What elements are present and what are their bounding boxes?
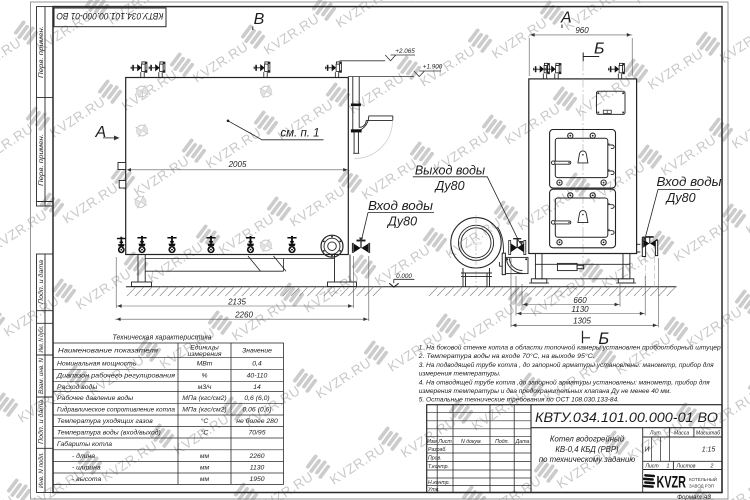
svg-text:0,06 (0,6): 0,06 (0,6) bbox=[242, 406, 271, 413]
svg-text:Н.контр.: Н.контр. bbox=[428, 480, 450, 486]
svg-text:0.000: 0.000 bbox=[396, 273, 412, 280]
svg-text:Расход воды: Расход воды bbox=[57, 383, 97, 391]
svg-text:5. Остальные технические треб: 5. Остальные технические требования по О… bbox=[419, 396, 620, 404]
svg-text:мм: мм bbox=[200, 453, 210, 460]
svg-text:+2.065: +2.065 bbox=[395, 48, 415, 55]
svg-text:2005: 2005 bbox=[228, 160, 247, 169]
svg-text:Подп. и дата: Подп. и дата bbox=[39, 399, 45, 444]
svg-text:2. Температура воды на входе: 2. Температура воды на входе 70°С, на вы… bbox=[418, 352, 595, 360]
svg-text:см. п. 1: см. п. 1 bbox=[280, 128, 319, 140]
svg-text:Перв. примен.: Перв. примен. bbox=[39, 134, 45, 186]
svg-text:1:15: 1:15 bbox=[702, 447, 716, 454]
svg-text:70/95: 70/95 bbox=[248, 430, 265, 437]
svg-text:Гидравлическое сопротивление к: Гидравлическое сопротивление котла bbox=[57, 405, 175, 413]
svg-text:0,4: 0,4 bbox=[252, 361, 262, 368]
svg-text:+1.900: +1.900 bbox=[423, 64, 443, 71]
svg-text:Масса: Масса bbox=[674, 431, 689, 437]
svg-text:Лист: Лист bbox=[437, 439, 452, 445]
svg-text:Ду80: Ду80 bbox=[386, 215, 417, 229]
svg-text:3. На подводящей трубе котла: 3. На подводящей трубе котла , до запорн… bbox=[419, 361, 714, 369]
svg-text:2260: 2260 bbox=[234, 311, 253, 320]
svg-text:В: В bbox=[254, 11, 265, 28]
svg-text:Рабочее давление воды: Рабочее давление воды bbox=[57, 394, 133, 402]
svg-text:Формат А3: Формат А3 bbox=[677, 494, 711, 500]
svg-text:Выход воды: Выход воды bbox=[415, 164, 485, 178]
svg-text:Б: Б bbox=[594, 41, 604, 58]
svg-text:960: 960 bbox=[575, 26, 589, 35]
svg-text:- длина: - длина bbox=[72, 452, 95, 460]
svg-text:КОТЕЛЬНЫЙ: КОТЕЛЬНЫЙ bbox=[689, 475, 717, 482]
svg-text:измерения: измерения bbox=[187, 351, 221, 358]
svg-text:измерения температуры.: измерения температуры. bbox=[419, 371, 501, 378]
svg-text:ЗАВОД РЭП: ЗАВОД РЭП bbox=[689, 484, 714, 489]
svg-text:KVZR: KVZR bbox=[657, 474, 687, 492]
svg-text:м3/ч: м3/ч bbox=[198, 384, 212, 391]
svg-text:1130: 1130 bbox=[571, 305, 589, 314]
svg-text:Лит.: Лит. bbox=[649, 431, 662, 437]
svg-text:Изм: Изм bbox=[427, 439, 437, 445]
svg-text:Перв. примен.: Перв. примен. bbox=[39, 26, 45, 78]
svg-text:мм: мм bbox=[200, 476, 210, 483]
svg-text:Дата: Дата bbox=[515, 439, 530, 445]
svg-text:2260: 2260 bbox=[248, 453, 264, 460]
svg-text:- высота: - высота bbox=[72, 476, 101, 483]
svg-text:Ду80: Ду80 bbox=[433, 179, 464, 193]
svg-text:КВТУ.034.101.00.000-01 ВО: КВТУ.034.101.00.000-01 ВО bbox=[56, 11, 164, 22]
svg-text:2135: 2135 bbox=[227, 298, 246, 307]
svg-text:Вход воды: Вход воды bbox=[657, 175, 722, 189]
svg-text:МПа (кгс/см2): МПа (кгс/см2) bbox=[182, 395, 226, 402]
svg-text:МПа (кгс/см2): МПа (кгс/см2) bbox=[182, 406, 226, 413]
svg-text:Значение: Значение bbox=[242, 347, 272, 354]
svg-text:1305: 1305 bbox=[573, 317, 591, 326]
svg-text:Масштаб: Масштаб bbox=[696, 431, 721, 437]
svg-text:%: % bbox=[201, 373, 207, 380]
svg-text:4. На отводящей трубе котла ,: 4. На отводящей трубе котла ,до запорной… bbox=[419, 379, 710, 387]
svg-text:мм: мм bbox=[200, 465, 210, 472]
svg-text:Вход воды: Вход воды bbox=[368, 199, 433, 213]
svg-text:МВт: МВт bbox=[197, 361, 213, 368]
svg-text:- ширина: - ширина bbox=[72, 465, 101, 472]
svg-text:КВ-0,4 КБД (РВР): КВ-0,4 КБД (РВР) bbox=[555, 445, 619, 454]
svg-text:Наименование показателя: Наименование показателя bbox=[58, 347, 158, 354]
svg-text:Лист: Лист bbox=[644, 464, 659, 470]
svg-text:Котел водогрейный: Котел водогрейный bbox=[550, 434, 625, 443]
svg-text:Разраб.: Разраб. bbox=[428, 447, 447, 453]
svg-text:КВТУ.034.101.00.000-01 ВО: КВТУ.034.101.00.000-01 ВО bbox=[535, 410, 718, 425]
svg-text:Взам. инв. N: Взам. инв. N bbox=[39, 357, 45, 394]
svg-text:2: 2 bbox=[710, 464, 714, 470]
svg-text:Габариты котла: Габариты котла bbox=[57, 440, 112, 448]
svg-text:не более 280: не более 280 bbox=[236, 417, 278, 425]
svg-text:СВ020: СВ020 bbox=[470, 241, 483, 246]
svg-text:Инв. N дубл.: Инв. N дубл. bbox=[39, 326, 45, 353]
svg-text:40-110: 40-110 bbox=[247, 373, 268, 380]
svg-text:Подп. и дата: Подп. и дата bbox=[39, 259, 45, 304]
svg-text:А: А bbox=[560, 10, 572, 27]
svg-text:Техническая характеристика: Техническая характеристика bbox=[112, 334, 211, 341]
svg-text:Инв. N подл.: Инв. N подл. bbox=[39, 452, 45, 488]
svg-text:1: 1 bbox=[667, 464, 670, 470]
svg-text:°С: °С bbox=[201, 429, 209, 437]
svg-text:Пров.: Пров. bbox=[428, 456, 442, 462]
svg-text:Номинальная мощность: Номинальная мощность bbox=[57, 361, 137, 368]
svg-text:1950: 1950 bbox=[249, 476, 264, 483]
svg-text:1. На боковой стенке котла в: 1. На боковой стенке котла в области топ… bbox=[419, 343, 721, 351]
svg-text:660: 660 bbox=[573, 296, 587, 305]
svg-text:Утв.: Утв. bbox=[428, 487, 440, 493]
svg-text:Температура воды (вход/выход): Температура воды (вход/выход) bbox=[57, 429, 161, 437]
svg-text:Температура уходящих газов: Температура уходящих газов bbox=[57, 417, 153, 425]
svg-text:Ду80: Ду80 bbox=[664, 191, 695, 205]
svg-text:по техническому заданию: по техническому заданию bbox=[539, 455, 635, 464]
svg-text:0,6 (6,0): 0,6 (6,0) bbox=[244, 395, 269, 402]
svg-text:14: 14 bbox=[253, 384, 261, 391]
svg-text:Диапазон рабочего регулировани: Диапазон рабочего регулирования bbox=[56, 372, 175, 380]
svg-text:N докум.: N докум. bbox=[461, 439, 482, 445]
svg-text:Т.контр.: Т.контр. bbox=[428, 464, 449, 470]
svg-text:Листов: Листов bbox=[676, 464, 696, 470]
svg-text:°С: °С bbox=[201, 417, 209, 425]
svg-text:1130: 1130 bbox=[250, 465, 265, 472]
svg-text:измерения температуры и два пр: измерения температуры и два предохраните… bbox=[419, 387, 672, 395]
svg-text:Подп.: Подп. bbox=[495, 439, 509, 445]
